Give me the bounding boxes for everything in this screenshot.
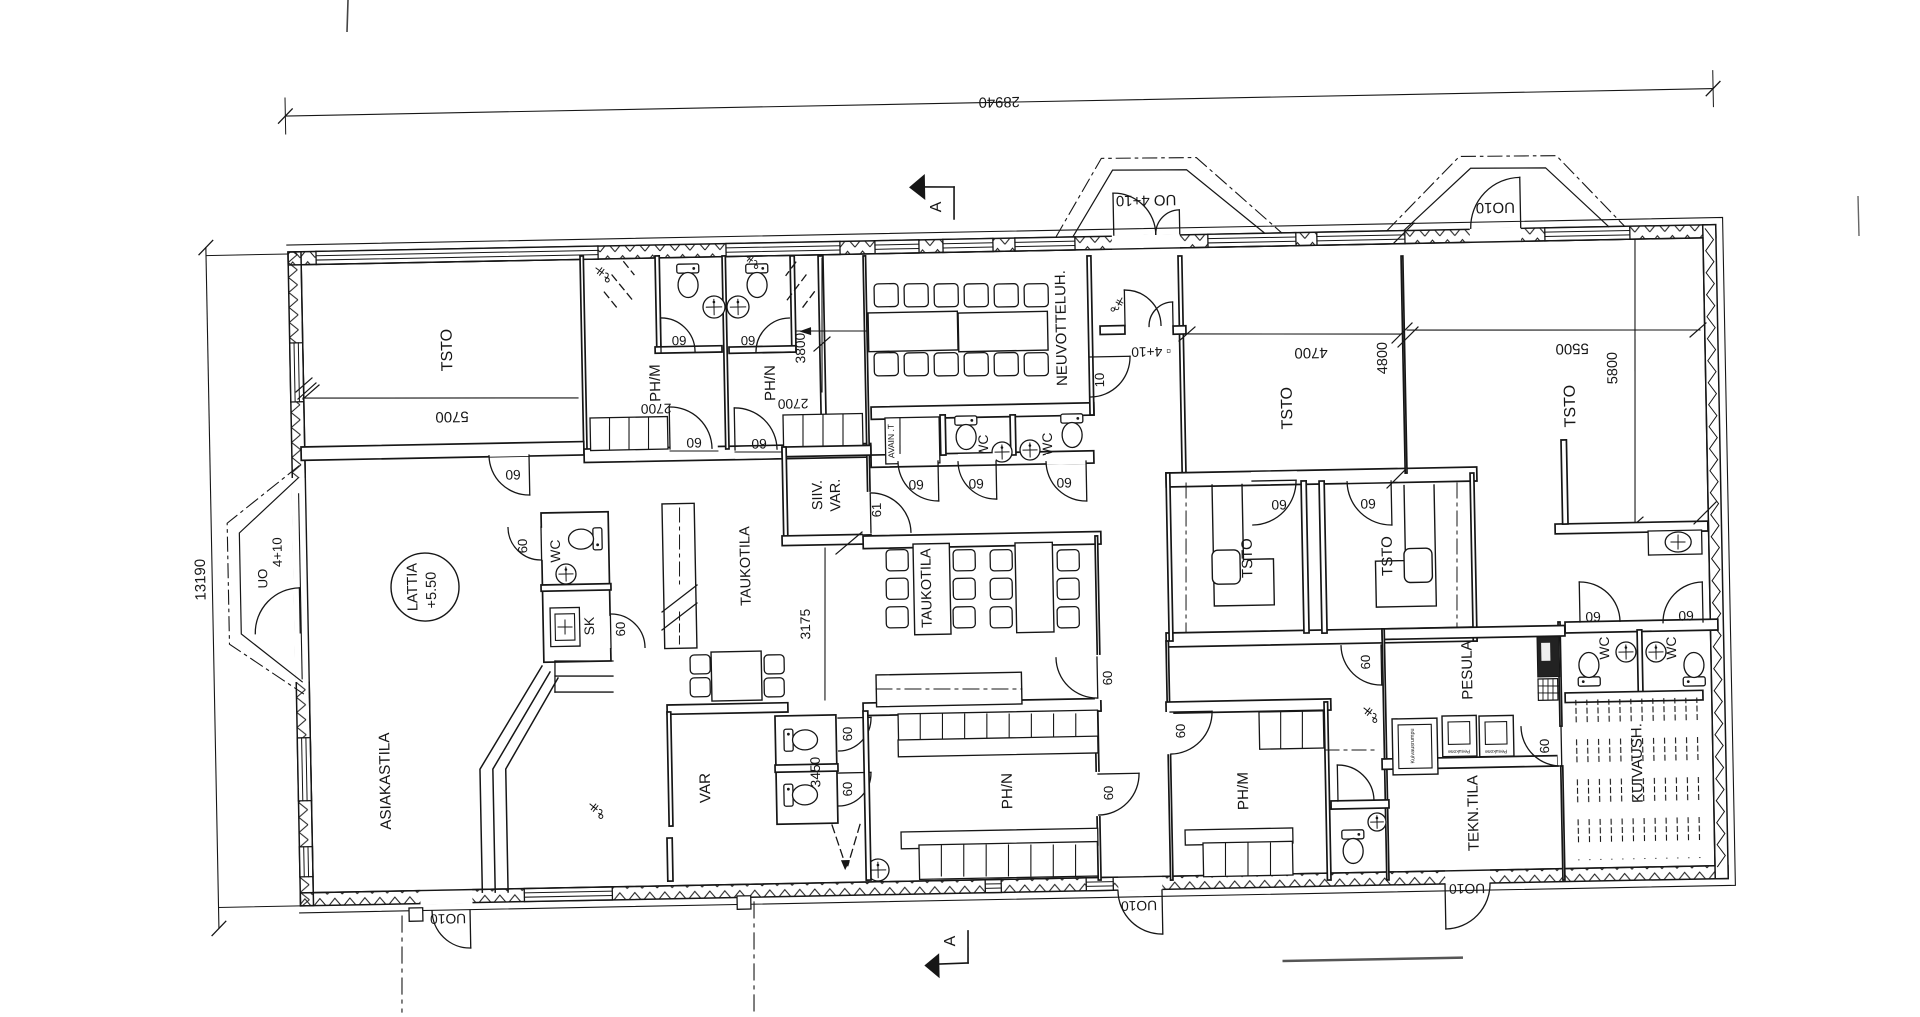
svg-text:UO 4+10: UO 4+10 [1116, 191, 1177, 209]
svg-text:WC: WC [1040, 432, 1055, 455]
svg-text:60: 60 [1585, 609, 1601, 624]
svg-text:PH/M: PH/M [647, 364, 665, 402]
svg-text:60: 60 [968, 476, 984, 491]
svg-text:UO10: UO10 [430, 911, 467, 927]
svg-text:60: 60 [515, 539, 530, 554]
svg-text:KUIVAUSH.: KUIVAUSH. [1628, 723, 1647, 803]
svg-text:Pesukone: Pesukone [1448, 748, 1471, 754]
svg-text:4+10: 4+10 [269, 537, 285, 567]
svg-text:60: 60 [751, 436, 767, 451]
svg-text:2700: 2700 [640, 401, 671, 417]
svg-text:LATTIA: LATTIA [405, 563, 422, 612]
svg-text:VAR: VAR [697, 773, 715, 803]
svg-text:PESULA: PESULA [1458, 640, 1476, 700]
svg-text:SIIV.: SIIV. [810, 480, 827, 510]
svg-text:5700: 5700 [435, 408, 469, 426]
svg-text:VAR.: VAR. [828, 479, 845, 512]
svg-text:SK: SK [582, 616, 597, 635]
svg-text:4700: 4700 [1294, 344, 1328, 362]
svg-text:60: 60 [1056, 475, 1072, 490]
svg-text:A: A [928, 201, 945, 212]
svg-text:28940: 28940 [978, 93, 1019, 110]
svg-text:Kuivausrumpu: Kuivausrumpu [1410, 728, 1417, 763]
svg-text:60: 60 [1358, 655, 1373, 670]
svg-text:3800: 3800 [793, 332, 809, 363]
svg-text:UO10: UO10 [1449, 881, 1486, 897]
svg-text:TSTO: TSTO [1239, 538, 1257, 578]
svg-text:TEKN.TILA: TEKN.TILA [1464, 775, 1482, 851]
svg-text:60: 60 [672, 333, 687, 348]
svg-text:PH/M: PH/M [1235, 772, 1253, 810]
svg-text:UO10: UO10 [1476, 198, 1516, 216]
svg-text:WC: WC [1664, 636, 1679, 659]
svg-text:WC: WC [1597, 636, 1612, 659]
svg-text:10: 10 [1092, 373, 1107, 388]
svg-text:Pesukone: Pesukone [1485, 748, 1508, 754]
svg-text:WC: WC [548, 539, 563, 562]
svg-text:60: 60 [908, 477, 924, 492]
svg-text:61: 61 [869, 503, 884, 518]
svg-text:TAUKOTILA: TAUKOTILA [737, 526, 755, 606]
svg-text:60: 60 [840, 782, 855, 797]
svg-text:ASIAKASTILA: ASIAKASTILA [376, 732, 395, 830]
svg-text:60: 60 [1537, 739, 1552, 754]
svg-text:13190: 13190 [192, 559, 210, 601]
svg-text:TSTO: TSTO [1279, 387, 1297, 430]
svg-text:60: 60 [1360, 496, 1376, 511]
svg-text:60: 60 [1678, 608, 1694, 623]
svg-text:60: 60 [1100, 671, 1115, 686]
svg-text:+5.50: +5.50 [424, 572, 441, 609]
svg-text:2700: 2700 [777, 396, 808, 412]
svg-text:60: 60 [840, 727, 855, 742]
svg-text:UO: UO [255, 569, 270, 589]
svg-text:A: A [942, 935, 959, 946]
svg-text:60: 60 [505, 467, 521, 482]
svg-text:5800: 5800 [1605, 352, 1622, 385]
svg-text:TSTO: TSTO [1562, 385, 1580, 428]
svg-text:60: 60 [1271, 497, 1287, 512]
svg-text:NEUVOTTELUH.: NEUVOTTELUH. [1052, 270, 1071, 386]
svg-text:60: 60 [686, 435, 702, 450]
svg-text:PH/N: PH/N [762, 365, 780, 401]
svg-text:AVAIN .T: AVAIN .T [886, 424, 897, 458]
svg-text:60: 60 [613, 622, 628, 637]
svg-text:TAUKOTILA: TAUKOTILA [918, 548, 936, 628]
svg-text:60: 60 [1173, 724, 1188, 739]
svg-text:3450: 3450 [808, 756, 824, 787]
svg-text:3175: 3175 [798, 608, 814, 639]
svg-text:5500: 5500 [1555, 340, 1589, 358]
svg-text:PH/N: PH/N [999, 773, 1017, 810]
svg-text:60: 60 [1101, 786, 1116, 801]
svg-text:▫ 4+10: ▫ 4+10 [1131, 344, 1171, 360]
svg-text:60: 60 [741, 333, 756, 348]
svg-text:TSTO: TSTO [439, 329, 457, 372]
svg-text:4800: 4800 [1375, 342, 1392, 375]
svg-text:UO10: UO10 [1121, 898, 1158, 914]
svg-text:TSTO: TSTO [1379, 536, 1397, 576]
